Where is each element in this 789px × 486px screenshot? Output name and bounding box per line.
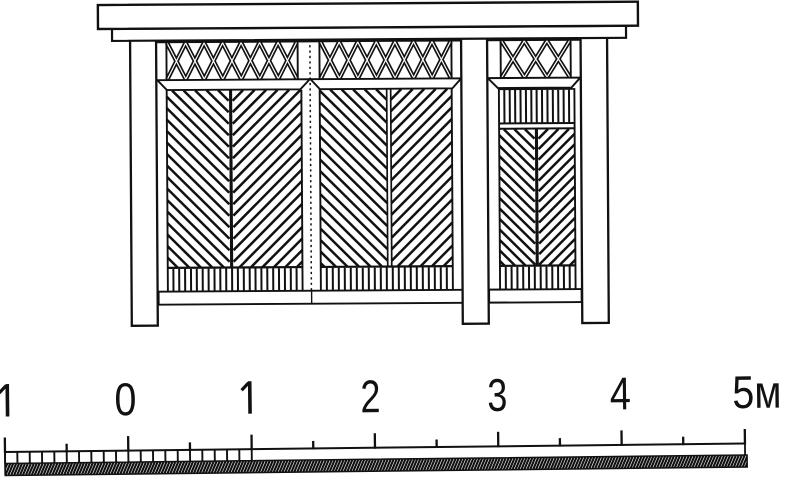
svg-text:5м: 5м — [732, 366, 782, 419]
svg-text:2: 2 — [360, 370, 381, 422]
svg-text:3: 3 — [487, 369, 508, 421]
svg-text:4: 4 — [610, 367, 632, 419]
svg-text:0: 0 — [114, 373, 137, 425]
